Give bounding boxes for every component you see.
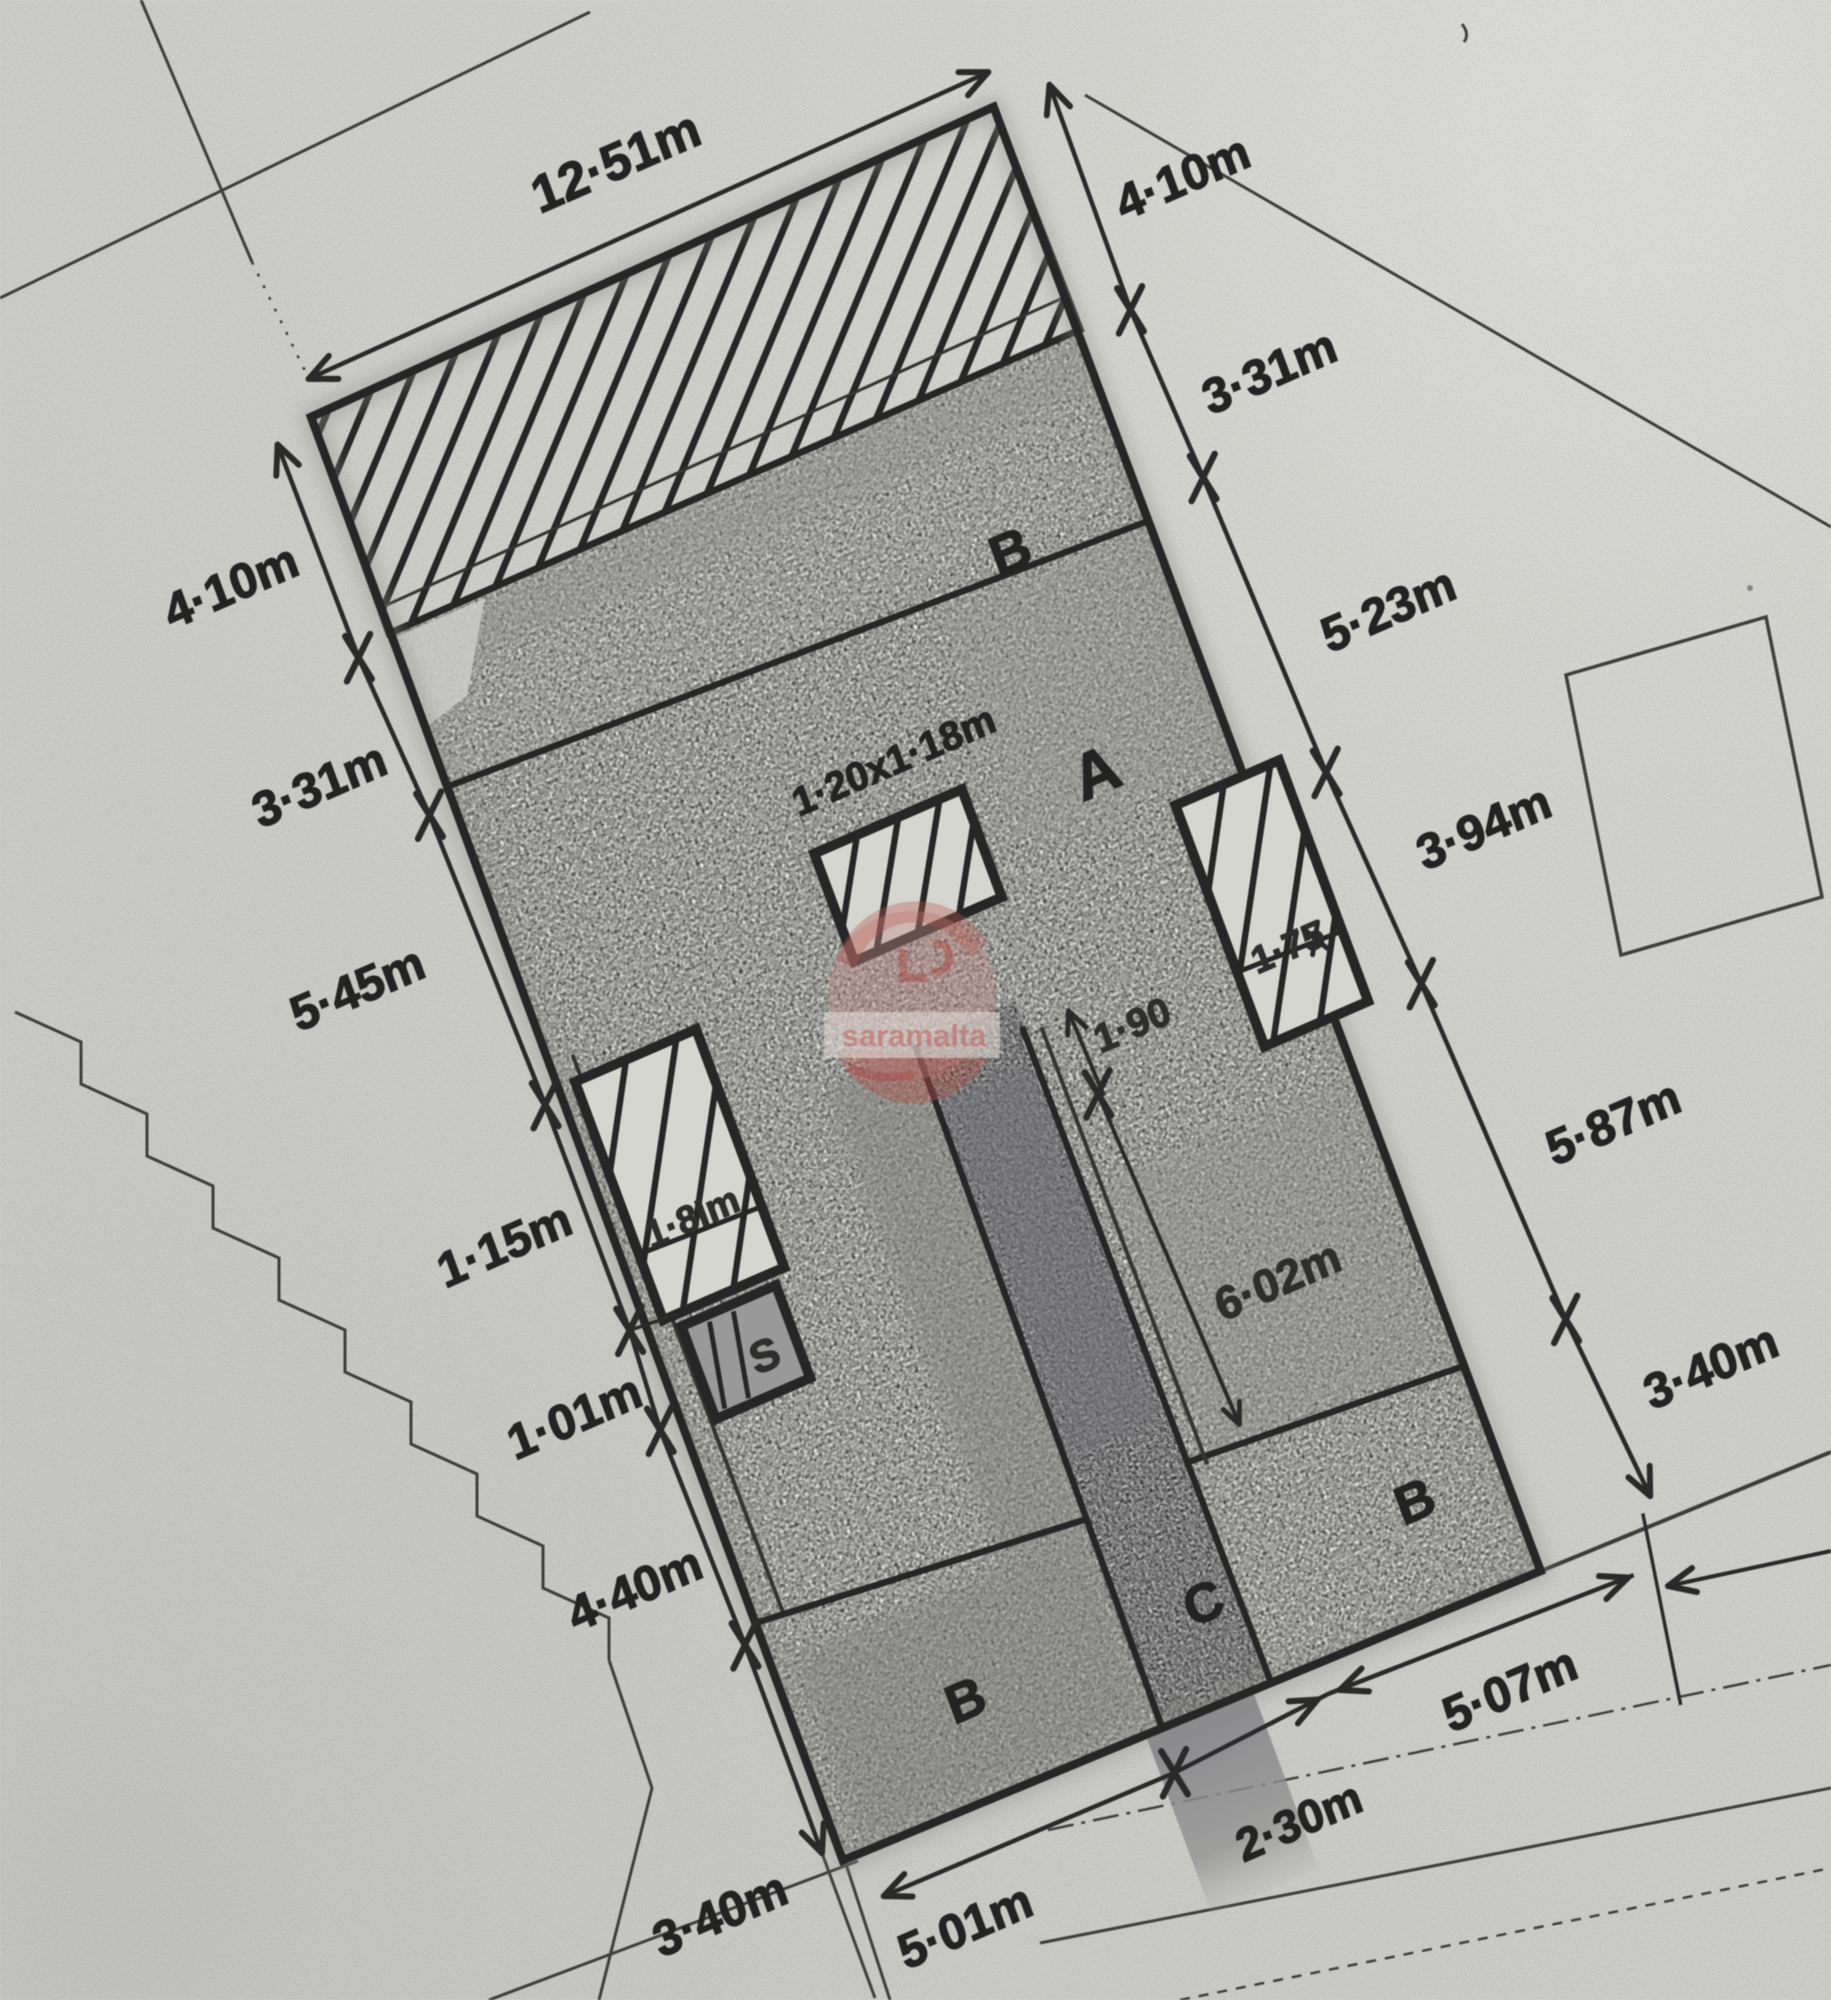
svg-text:saramalta: saramalta [842, 1018, 988, 1053]
